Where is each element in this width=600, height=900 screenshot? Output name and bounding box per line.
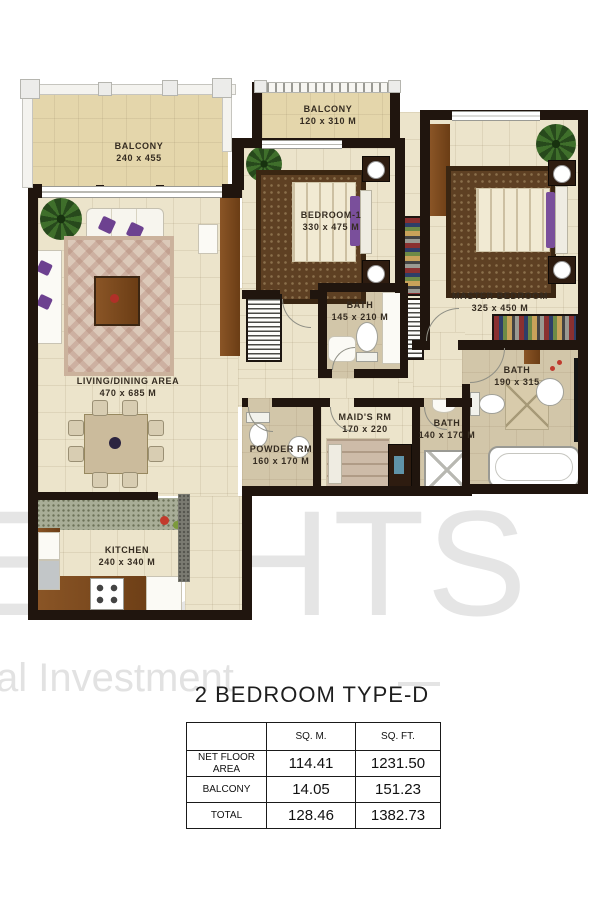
table-row: NET FLOOR AREA 114.41 1231.50 <box>187 751 441 777</box>
sqm-value: 128.46 <box>267 803 356 829</box>
wall <box>412 340 426 350</box>
table-row: BALCONY 14.05 151.23 <box>187 777 441 803</box>
wall <box>232 138 244 190</box>
chair <box>68 420 84 436</box>
chair <box>92 400 108 416</box>
bed-headboard <box>360 190 372 254</box>
bed-pillow <box>328 444 342 484</box>
room-name: BALCONY <box>300 103 357 115</box>
kitchen-counter-granite <box>36 498 182 530</box>
room-dims: 330 x 475 M <box>301 221 361 233</box>
window <box>42 186 222 198</box>
col-header-sqft: SQ. FT. <box>356 723 441 751</box>
railing-post <box>162 80 178 96</box>
room-label-bedroom1: BEDROOM-1 330 x 475 M <box>301 209 361 233</box>
wall <box>28 184 38 620</box>
row-label: NET FLOOR AREA <box>187 751 267 777</box>
toilet <box>356 322 378 352</box>
room-name: MASTER BEDROOM <box>452 290 548 302</box>
row-label: BALCONY <box>187 777 267 803</box>
chair <box>148 420 164 436</box>
wall <box>242 494 252 620</box>
railing-post <box>388 80 401 93</box>
desk <box>198 224 218 254</box>
soap-decor <box>557 360 562 365</box>
sqm-value: 14.05 <box>267 777 356 803</box>
room-name: BALCONY <box>115 140 164 152</box>
wall <box>28 492 158 500</box>
nightstand <box>362 156 390 182</box>
linen-closet <box>246 294 282 362</box>
room-label-powder: POWDER RM 160 x 170 M <box>250 443 312 467</box>
sqft-value: 1231.50 <box>356 751 441 777</box>
room-dims: 190 x 315 <box>494 376 539 388</box>
wall <box>28 610 252 620</box>
room-name: LIVING/DINING AREA <box>77 375 179 387</box>
sqft-value: 151.23 <box>356 777 441 803</box>
plant <box>536 124 576 164</box>
wall <box>222 184 242 198</box>
room-name: BEDROOM-1 <box>301 209 361 221</box>
bed-headboard <box>555 186 568 254</box>
sqm-value: 114.41 <box>267 751 356 777</box>
toilet-tank <box>356 352 378 362</box>
col-header-sqm: SQ. M. <box>267 723 356 751</box>
room-label-living: LIVING/DINING AREA 470 x 685 M <box>77 375 179 399</box>
room-label-maids: MAID'S RM 170 x 220 <box>338 411 391 435</box>
balcony-railing <box>258 82 398 93</box>
nightstand <box>548 160 576 186</box>
area-table: SQ. M. SQ. FT. NET FLOOR AREA 114.41 123… <box>186 722 441 829</box>
chair <box>122 400 138 416</box>
bath-shelf <box>524 350 540 364</box>
wall <box>242 290 280 299</box>
room-dims: 240 x 455 <box>115 152 164 164</box>
kitchen-sink <box>38 560 60 590</box>
wall <box>420 110 430 350</box>
sqft-value: 1382.73 <box>356 803 441 829</box>
railing-post <box>20 79 40 99</box>
room-label-kitchen: KITCHEN 240 x 340 M <box>99 544 156 568</box>
room-name: POWDER RM <box>250 443 312 455</box>
wall <box>318 283 327 378</box>
master-sink <box>536 378 564 406</box>
room-name: BATH <box>494 364 539 376</box>
room-name: KITCHEN <box>99 544 156 556</box>
chair <box>92 472 108 488</box>
chair <box>68 446 84 462</box>
balcony-railing <box>222 94 232 152</box>
room-name: BATH <box>332 299 389 311</box>
centerpiece <box>109 437 121 449</box>
wall <box>578 110 588 494</box>
toilet <box>479 394 505 414</box>
table-decor <box>110 294 119 303</box>
room-dims: 470 x 685 M <box>77 387 179 399</box>
fridge <box>38 532 60 560</box>
window <box>262 140 342 149</box>
chair <box>148 446 164 462</box>
wall <box>272 398 330 407</box>
room-dims: 325 x 450 M <box>452 302 548 314</box>
wall <box>400 283 408 378</box>
page-title: 2 BEDROOM TYPE-D <box>195 682 429 708</box>
table-row: TOTAL 128.46 1382.73 <box>187 803 441 829</box>
room-dims: 120 x 310 M <box>300 115 357 127</box>
chair <box>122 472 138 488</box>
room-dims: 140 x 170 M <box>419 429 476 441</box>
room-dims: 160 x 170 M <box>250 455 312 467</box>
wall <box>395 148 405 293</box>
tomato-decor <box>160 516 169 525</box>
wall <box>313 398 321 490</box>
tv-screen <box>394 456 404 474</box>
stove <box>90 578 124 610</box>
room-dims: 145 x 210 M <box>332 311 389 323</box>
room-name: BATH <box>419 417 476 429</box>
row-label: TOTAL <box>187 803 267 829</box>
railing-post <box>254 80 267 93</box>
plant <box>40 198 82 240</box>
wall <box>412 398 420 490</box>
balcony-railing <box>22 94 33 188</box>
wall <box>318 369 332 378</box>
bathtub <box>488 446 580 488</box>
kitchen-pillar <box>178 494 190 582</box>
corridor-floor <box>185 496 242 610</box>
railing-post <box>98 82 112 96</box>
tv-cabinet <box>220 188 240 356</box>
room-label-maid-bath: BATH 140 x 170 M <box>419 417 476 441</box>
master-bed <box>476 188 550 252</box>
balcony-railing <box>24 84 236 95</box>
soap-decor <box>550 366 555 371</box>
window <box>452 111 540 121</box>
room-label-balcony-main: BALCONY 240 x 455 <box>115 140 164 164</box>
nightstand <box>548 256 576 284</box>
room-label-bath1: BATH 145 x 210 M <box>332 299 389 323</box>
floorplan-page: HEIGHTS al Investment <box>0 0 600 900</box>
room-label-master: MASTER BEDROOM 325 x 450 M <box>452 290 548 314</box>
bed-pillow <box>546 192 555 248</box>
room-dims: 240 x 340 M <box>99 556 156 568</box>
room-label-master-bath: BATH 190 x 315 <box>494 364 539 388</box>
dishwasher <box>146 576 182 614</box>
wall <box>318 283 408 292</box>
room-dims: 170 x 220 <box>338 423 391 435</box>
room-label-balcony-small: BALCONY 120 x 310 M <box>300 103 357 127</box>
railing-post <box>212 78 232 98</box>
table-corner-cell <box>187 723 267 751</box>
wall <box>466 484 588 494</box>
wall <box>242 486 472 496</box>
room-name: MAID'S RM <box>338 411 391 423</box>
wall <box>242 398 248 407</box>
